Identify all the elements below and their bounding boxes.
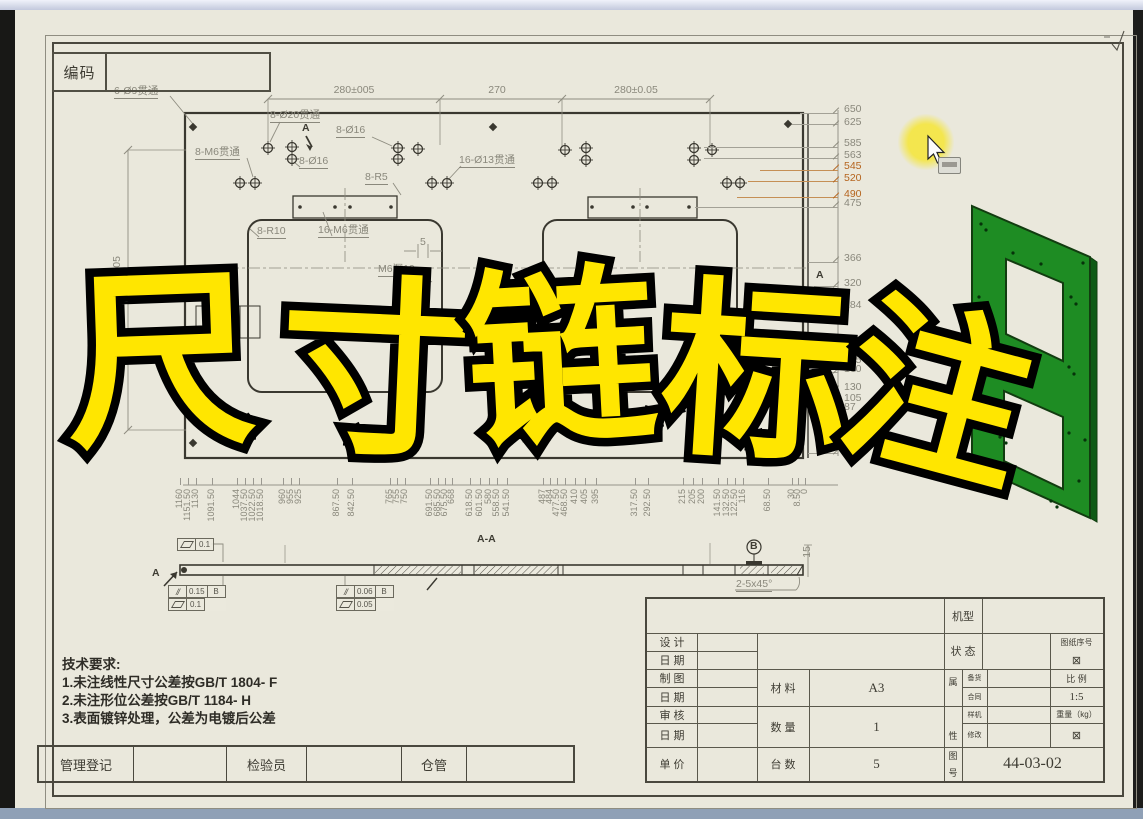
hole-symbol xyxy=(261,141,275,155)
title-cell-material-value: A3 xyxy=(809,669,944,706)
title-cell-attr-bottom: 性 xyxy=(944,725,962,745)
title-cell-attr-contract: 合同 xyxy=(962,687,987,706)
hole-symbol xyxy=(440,176,454,190)
title-cell-status: 状 态 xyxy=(944,633,982,669)
title-cell-units-label: 台 数 xyxy=(757,747,809,781)
registry-cell-admin: 管理登记 xyxy=(39,747,134,781)
title-cell-attr-revision: 修改 xyxy=(962,723,987,747)
corner-hole-symbol xyxy=(189,123,197,131)
hole-symbol xyxy=(579,153,593,167)
cad-app-window: 6-Ø9贯通8-Ø20贯通8-Ø168-M6贯通8-Ø1616-Ø13贯通8-R… xyxy=(0,0,1143,819)
hole-symbol xyxy=(233,176,247,190)
tech-req-item: 3.表面镀锌处理，公差为电镀后公差 xyxy=(62,710,277,728)
registry-cell-empty xyxy=(467,747,573,781)
hole-symbol xyxy=(425,176,439,190)
title-cell-machine-model: 机型 xyxy=(944,599,982,633)
tab-hole-dot xyxy=(631,205,635,209)
green-part-preview xyxy=(972,206,1097,522)
code-box: 编码 xyxy=(52,52,271,92)
tech-req-item: 2.未注形位公差按GB/T 1184- H xyxy=(62,692,277,710)
title-cell-attr-prototype: 样机 xyxy=(962,706,987,723)
title-cell-attr-stock: 备货 xyxy=(962,669,987,687)
hole-symbol xyxy=(411,142,425,156)
registry-row: 管理登记 检验员 仓管 xyxy=(37,745,575,783)
title-cell-design: 设 计 xyxy=(647,633,697,651)
hole-symbol xyxy=(687,141,701,155)
title-cell-date: 日 期 xyxy=(647,687,697,706)
title-block: 机型 设 计 日 期 制 图 日 期 审 核 日 期 单 价 材 料 A3 数 … xyxy=(645,597,1105,783)
tab-hole-dot xyxy=(333,205,337,209)
title-cell-fig-bottom: 号 xyxy=(944,764,962,781)
corner-hole-symbol xyxy=(784,437,792,445)
surface-finish-icon xyxy=(1104,31,1124,50)
hole-symbol xyxy=(579,141,593,155)
hole-symbol xyxy=(531,176,545,190)
hole-symbol xyxy=(545,176,559,190)
title-cell-unit-price: 单 价 xyxy=(647,747,697,781)
corner-hole-symbol xyxy=(489,123,497,131)
title-cell-date: 日 期 xyxy=(647,651,697,669)
title-cell-scale-label: 比 例 xyxy=(1050,669,1103,687)
title-cell-drawing-no-mark: ⊠ xyxy=(1050,651,1103,669)
tab-hole-dot xyxy=(645,205,649,209)
title-cell-draft: 制 图 xyxy=(647,669,697,687)
hole-symbol xyxy=(391,152,405,166)
tech-req-item: 1.未注线性尺寸公差按GB/T 1804- F xyxy=(62,674,277,692)
title-cell-fig-top: 图 xyxy=(944,747,962,764)
tab-hole-dot xyxy=(687,205,691,209)
title-cell-attr-top: 属 xyxy=(944,671,962,691)
hole-symbol xyxy=(687,153,701,167)
registry-cell-inspector: 检验员 xyxy=(227,747,307,781)
hole-symbol xyxy=(558,143,572,157)
title-cell-drawing-no-label: 图纸序号 xyxy=(1050,633,1103,651)
title-cell-material-label: 材 料 xyxy=(757,669,809,706)
title-cell-quantity-label: 数 量 xyxy=(757,706,809,747)
hole-symbol xyxy=(285,140,299,154)
code-box-label: 编码 xyxy=(54,54,107,90)
hole-symbol xyxy=(248,176,262,190)
title-cell-scale-value: 1:5 xyxy=(1050,687,1103,706)
title-cell-weight-mark: ⊠ xyxy=(1050,723,1103,747)
tab-hole-dot xyxy=(298,205,302,209)
hole-symbol xyxy=(733,176,747,190)
tab-hole-dot xyxy=(348,205,352,209)
corner-hole-symbol xyxy=(784,120,792,128)
tab-hole-dot xyxy=(389,205,393,209)
registry-cell-empty xyxy=(307,747,402,781)
tech-req-title: 技术要求: xyxy=(62,656,277,674)
registry-cell-warehouse: 仓管 xyxy=(402,747,467,781)
hole-symbol xyxy=(720,176,734,190)
title-cell-review: 审 核 xyxy=(647,706,697,723)
technical-requirements: 技术要求: 1.未注线性尺寸公差按GB/T 1804- F 2.未注形位公差按G… xyxy=(62,656,277,728)
title-cell-fig-no: 44-03-02 xyxy=(962,747,1103,781)
cursor-badge-icon xyxy=(938,157,961,174)
registry-cell-empty xyxy=(134,747,227,781)
title-cell-date: 日 期 xyxy=(647,723,697,747)
title-cell-weight-label: 重量（kg） xyxy=(1050,706,1103,723)
tab-hole-dot xyxy=(590,205,594,209)
corner-hole-symbol xyxy=(189,439,197,447)
hole-symbol xyxy=(705,143,719,157)
title-cell-quantity-value: 1 xyxy=(809,706,944,747)
title-cell-units-value: 5 xyxy=(809,747,944,781)
